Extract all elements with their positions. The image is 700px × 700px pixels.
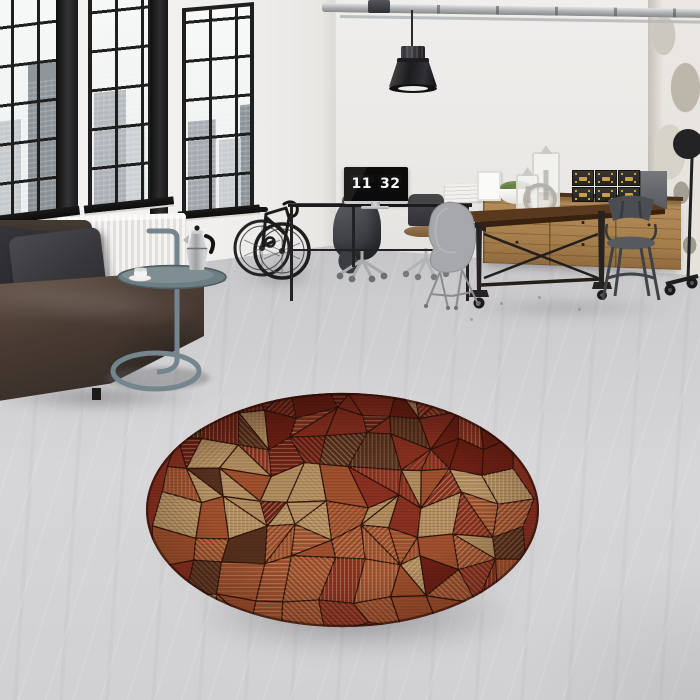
- bicycle-saddle: [255, 207, 268, 212]
- storage-box: [618, 170, 640, 186]
- flip-clock-minutes: 32: [378, 175, 402, 193]
- desk-leg: [290, 207, 293, 301]
- window-grid: [88, 0, 152, 211]
- lamp-cord: [411, 10, 413, 48]
- sofa-leg: [92, 388, 101, 400]
- flip-clock-hours: 11: [350, 175, 374, 193]
- window-bay: [88, 0, 152, 211]
- window-bay: [0, 0, 62, 231]
- pendant-lamp-bulb: [398, 86, 428, 91]
- shell-chair: [420, 192, 484, 310]
- round-mosaic-rug: [144, 390, 541, 630]
- window-frame-jamb: [56, 0, 78, 234]
- floor-lamp: [658, 118, 700, 298]
- loft-scene: 11 32: [0, 0, 700, 700]
- moka-pot: [183, 225, 213, 270]
- storage-box: [595, 170, 617, 186]
- desk-leg: [352, 207, 355, 267]
- side-table: [106, 220, 246, 402]
- wall-corner: [322, 0, 336, 252]
- bicycle: [236, 172, 310, 280]
- storage-box: [572, 170, 594, 186]
- table-casters: [474, 290, 608, 309]
- window-frame-jamb: [150, 0, 168, 222]
- pipe-joint: [368, 0, 390, 13]
- floor-mark: [470, 318, 473, 321]
- monitor-foot: [361, 206, 389, 209]
- monitor-screen: 11 32: [344, 167, 408, 204]
- metal-chair: [598, 194, 664, 306]
- window-grid: [0, 0, 62, 231]
